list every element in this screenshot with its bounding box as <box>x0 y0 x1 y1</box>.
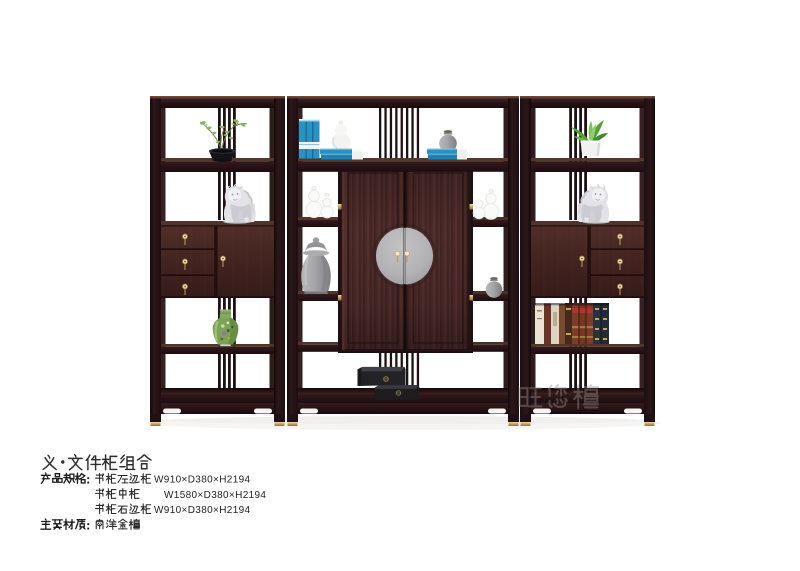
svg-text:W1580×D380×H2194: W1580×D380×H2194 <box>164 490 266 501</box>
svg-text:W910×D380×H2194: W910×D380×H2194 <box>154 505 251 516</box>
svg-text:W910×D380×H2194: W910×D380×H2194 <box>154 475 251 486</box>
